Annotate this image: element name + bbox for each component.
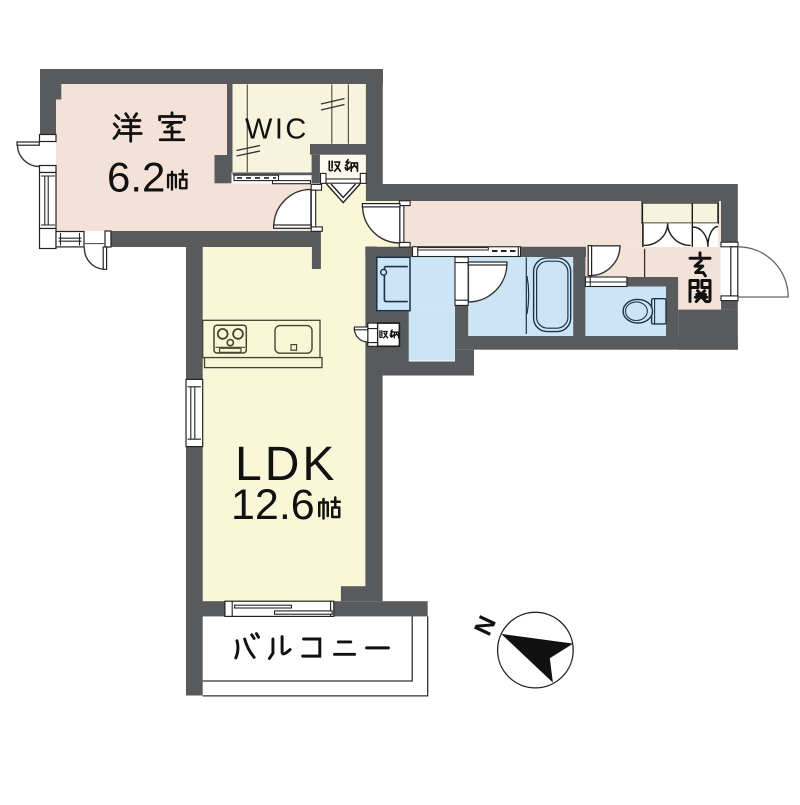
svg-text:6.2: 6.2 [107,154,165,201]
svg-text:12.6: 12.6 [231,481,315,529]
svg-text:WIC: WIC [245,114,309,146]
